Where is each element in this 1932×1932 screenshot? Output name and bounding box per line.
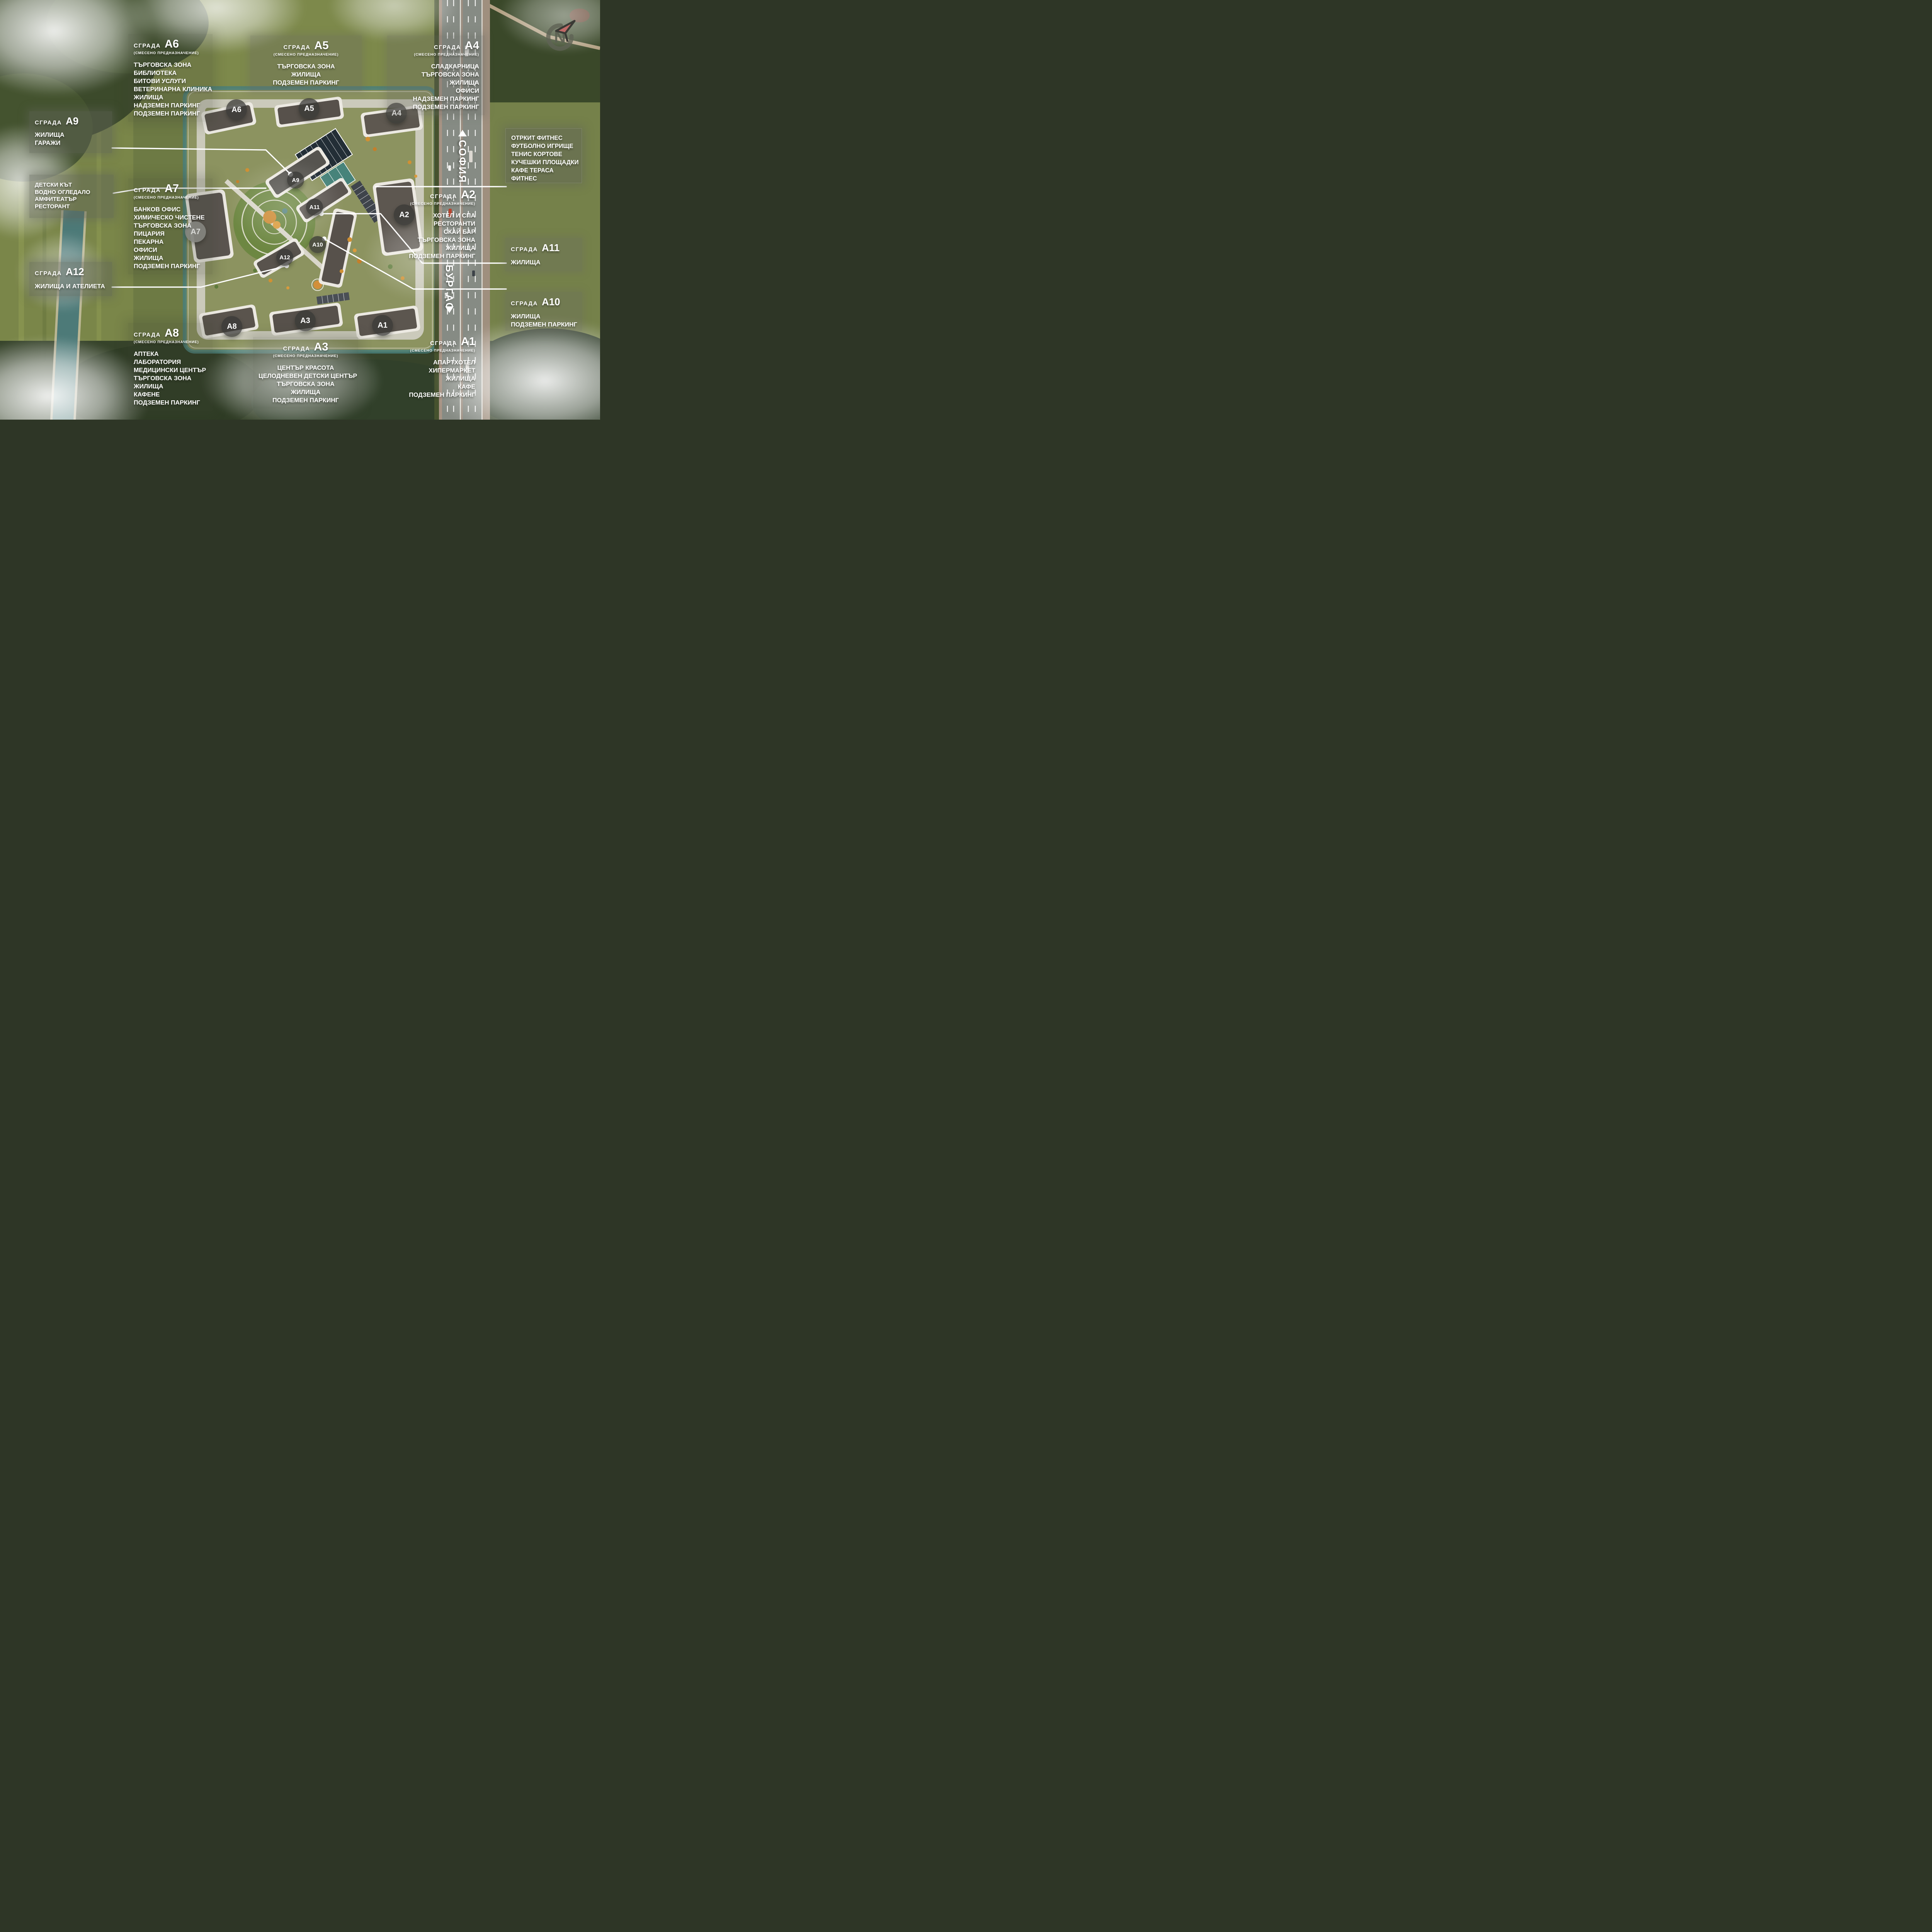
amenity-list: ЖИЛИЩА — [511, 259, 577, 267]
leader-a9 — [112, 148, 291, 174]
amenity: ХИПЕРМАРКЕТ — [392, 367, 475, 375]
amenity: ВОДНО ОГЛЕДАЛО — [35, 189, 108, 196]
masterplan-poster: А6 А5 А4 А9 А7 А12 А11 А10 А2 А8 А3 А1 С… — [0, 0, 600, 420]
amenity: ХОТЕЛ И СПА — [392, 212, 475, 220]
amenity: НАДЗЕМЕН ПАРКИНГ — [134, 102, 207, 110]
building-info-a12: СГРАДАА12 ЖИЛИЩА И АТЕЛИЕТА — [29, 262, 112, 296]
building-info-a2: СГРАДАА2 (СМЕСЕНО ПРЕДНАЗНАЧЕНИЕ) ХОТЕЛ … — [386, 185, 481, 264]
leader-dot-a10 — [322, 236, 327, 241]
amenity: ЖИЛИЩА — [134, 383, 207, 391]
amenity-list: АПТЕКА ЛАБОРАТОРИЯ МЕДИЦИНСКИ ЦЕНТЪР ТЪР… — [134, 350, 207, 407]
box-code: А6 — [165, 38, 179, 51]
amenity: КАФЕ — [392, 383, 475, 391]
amenity-list: ТЪРГОВСКА ЗОНА БИБЛИОТЕКА БИТОВИ УСЛУГИ … — [134, 61, 207, 118]
amenity: ФИТНЕС — [511, 175, 576, 183]
amenity: АПАРТХОТЕЛ — [392, 359, 475, 367]
amenity-list: ХОТЕЛ И СПА РЕСТОРАНТИ СКАЙ БАР ТЪРГОВСК… — [392, 212, 475, 260]
amenity: ТЪРГОВСКА ЗОНА — [134, 374, 207, 383]
amenity: ЖИЛИЩА — [511, 313, 577, 321]
building-info-a5: СГРАДАА5 (СМЕСЕНО ПРЕДНАЗНАЧЕНИЕ) ТЪРГОВ… — [250, 36, 362, 91]
amenity: КАФЕ ТЕРАСА — [511, 167, 576, 175]
amenity: ПОДЗЕМЕН ПАРКИНГ — [259, 396, 353, 405]
building-info-a1: СГРАДАА1 (СМЕСЕНО ПРЕДНАЗНАЧЕНИЕ) АПАРТХ… — [386, 332, 481, 403]
amenity: ЦЕЛОДНЕВЕН ДЕТСКИ ЦЕНТЪР — [259, 372, 353, 380]
building-info-a10: СГРАДАА10 ЖИЛИЩА ПОДЗЕМЕН ПАРКИНГ — [505, 292, 582, 331]
amenity: ФУТБОЛНО ИГРИЩЕ — [511, 142, 576, 150]
amenity-list: ЖИЛИЩА ГАРАЖИ — [35, 131, 107, 147]
amenity: СЛАДКАРНИЦА — [393, 63, 479, 71]
north-compass-icon: N — [541, 18, 579, 56]
amenity: ХИМИЧЕСКО ЧИСТЕНЕ — [134, 214, 207, 222]
amenity: ЖИЛИЩА — [259, 388, 353, 396]
road-label-sofia: СОФИЯ — [456, 140, 468, 184]
amenity: МЕДИЦИНСКИ ЦЕНТЪР — [134, 366, 207, 374]
building-info-a11: СГРАДАА11 ЖИЛИЩА — [505, 238, 582, 271]
amenity: БИТОВИ УСЛУГИ — [134, 77, 207, 85]
amenity: ЖИЛИЩА — [35, 131, 107, 139]
amenity: ЖИЛИЩА И АТЕЛИЕТА — [35, 282, 107, 291]
leader-dot-a12 — [284, 264, 289, 268]
amenity-list: АПАРТХОТЕЛ ХИПЕРМАРКЕТ ЖИЛИЩА КАФЕ ПОДЗЕ… — [392, 359, 475, 399]
amenity: ПОДЗЕМЕН ПАРКИНГ — [134, 399, 207, 407]
amenity: НАДЗЕМЕН ПАРКИНГ — [393, 95, 479, 103]
amenity-list: ОТРКИТ ФИТНЕС ФУТБОЛНО ИГРИЩЕ ТЕНИС КОРТ… — [511, 134, 576, 183]
amenity: КУЧЕШКИ ПЛОЩАДКИ — [511, 158, 576, 167]
leader-dot-a11 — [319, 211, 324, 216]
box-subtitle: (СМЕСЕНО ПРЕДНАЗНАЧЕНИЕ) — [134, 51, 207, 55]
park-amenities-info: ДЕТСКИ КЪТ ВОДНО ОГЛЕДАЛО АМФИТЕАТЪР РЕС… — [29, 175, 114, 218]
amenity: ПОДЗЕМЕН ПАРКИНГ — [134, 262, 207, 270]
amenity: ЖИЛИЩА — [393, 79, 479, 87]
amenity: ПЕКАРНА — [134, 238, 207, 246]
amenity: ПОДЗЕМЕН ПАРКИНГ — [392, 391, 475, 399]
amenity: СКАЙ БАР — [392, 228, 475, 236]
amenity: ПОДЗЕМЕН ПАРКИНГ — [256, 79, 356, 87]
amenity: БИБЛИОТЕКА — [134, 69, 207, 77]
amenity: ЖИЛИЩА — [134, 254, 207, 262]
amenity-list: ДЕТСКИ КЪТ ВОДНО ОГЛЕДАЛО АМФИТЕАТЪР РЕС… — [35, 182, 108, 210]
amenity: ДЕТСКИ КЪТ — [35, 182, 108, 189]
building-info-a4: СГРАДАА4 (СМЕСЕНО ПРЕДНАЗНАЧЕНИЕ) СЛАДКА… — [387, 36, 485, 115]
leader-dot-a9 — [288, 172, 293, 177]
building-info-a6: СГРАДАА6 (СМЕСЕНО ПРЕДНАЗНАЧЕНИЕ) ТЪРГОВ… — [128, 34, 213, 122]
amenity-list: ТЪРГОВСКА ЗОНА ЖИЛИЩА ПОДЗЕМЕН ПАРКИНГ — [256, 63, 356, 87]
amenity: ЖИЛИЩА — [392, 244, 475, 252]
amenity: ВЕТЕРИНАРНА КЛИНИКА — [134, 85, 207, 94]
burgas-direction-arrow-icon — [445, 306, 454, 313]
amenity: ТЪРГОВСКА ЗОНА — [259, 380, 353, 388]
amenity-list: ЖИЛИЩА ПОДЗЕМЕН ПАРКИНГ — [511, 313, 577, 329]
amenity: КАФЕНЕ — [134, 391, 207, 399]
amenity: БАНКОВ ОФИС — [134, 206, 207, 214]
amenity: ПОДЗЕМЕН ПАРКИНГ — [134, 110, 207, 118]
building-info-a3: СГРАДАА3 (СМЕСЕНО ПРЕДНАЗНАЧЕНИЕ) ЦЕНТЪР… — [253, 337, 358, 408]
amenity: ОТРКИТ ФИТНЕС — [511, 134, 576, 142]
amenity: ЖИЛИЩА — [134, 94, 207, 102]
building-info-a8: СГРАДАА8 (СМЕСЕНО ПРЕДНАЗНАЧЕНИЕ) АПТЕКА… — [128, 323, 213, 411]
amenity: ПИЦАРИЯ — [134, 230, 207, 238]
amenity: АМФИТЕАТЪР — [35, 196, 108, 203]
sofia-direction-arrow-icon — [458, 130, 467, 136]
amenity: ПОДЗЕМЕН ПАРКИНГ — [393, 103, 479, 111]
road-label-burgas: БУРГАС — [443, 265, 455, 311]
amenity: ОФИСИ — [134, 246, 207, 254]
amenity: ЦЕНТЪР КРАСОТА — [259, 364, 353, 372]
amenity: ЖИЛИЩА — [256, 71, 356, 79]
amenity: РЕСТОРАНТ — [35, 203, 108, 211]
amenity: ПОДЗЕМЕН ПАРКИНГ — [511, 321, 577, 329]
amenity: ТЪРГОВСКА ЗОНА — [392, 236, 475, 244]
amenity-list: ЖИЛИЩА И АТЕЛИЕТА — [35, 282, 107, 291]
amenity: ЖИЛИЩА — [511, 259, 577, 267]
building-info-a9: СГРАДАА9 ЖИЛИЩА ГАРАЖИ — [29, 111, 112, 153]
amenity: ЛАБОРАТОРИЯ — [134, 358, 207, 366]
amenity: ОФИСИ — [393, 87, 479, 95]
amenity: ТЕНИС КОРТОВЕ — [511, 150, 576, 158]
amenity: ПОДЗЕМЕН ПАРКИНГ — [392, 252, 475, 260]
building-info-a7: СГРАДАА7 (СМЕСЕНО ПРЕДНАЗНАЧЕНИЕ) БАНКОВ… — [128, 179, 213, 274]
amenity: РЕСТОРАНТИ — [392, 220, 475, 228]
amenity-list: БАНКОВ ОФИС ХИМИЧЕСКО ЧИСТЕНЕ ТЪРГОВСКА … — [134, 206, 207, 270]
box-label: СГРАДА — [134, 43, 161, 49]
amenity: ТЪРГОВСКА ЗОНА — [134, 61, 207, 69]
amenity: ТЪРГОВСКА ЗОНА — [134, 222, 207, 230]
amenity-list: СЛАДКАРНИЦА ТЪРГОВСКА ЗОНА ЖИЛИЩА ОФИСИ … — [393, 63, 479, 111]
amenity-list: ЦЕНТЪР КРАСОТА ЦЕЛОДНЕВЕН ДЕТСКИ ЦЕНТЪР … — [259, 364, 353, 405]
amenity: ТЪРГОВСКА ЗОНА — [393, 71, 479, 79]
outdoor-amenities-info: ОТРКИТ ФИТНЕС ФУТБОЛНО ИГРИЩЕ ТЕНИС КОРТ… — [505, 128, 582, 183]
amenity: ЖИЛИЩА — [392, 375, 475, 383]
amenity: АПТЕКА — [134, 350, 207, 358]
amenity: ГАРАЖИ — [35, 139, 107, 147]
amenity: ТЪРГОВСКА ЗОНА — [256, 63, 356, 71]
